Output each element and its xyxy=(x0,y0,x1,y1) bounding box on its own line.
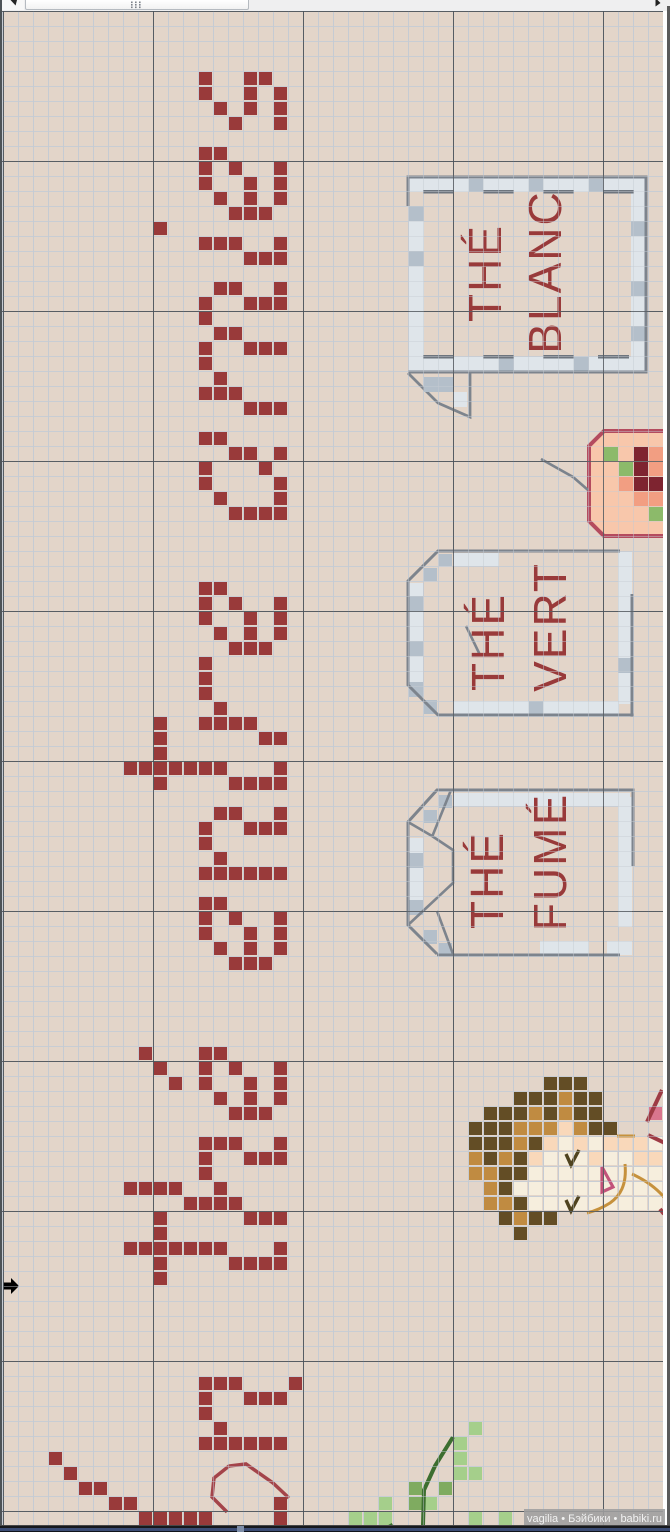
svg-text:FUMÉ: FUMÉ xyxy=(524,793,576,931)
svg-text:THÉ: THÉ xyxy=(461,831,513,929)
svg-text:VERT: VERT xyxy=(524,562,576,692)
svg-text:THÉ: THÉ xyxy=(462,593,514,691)
svg-text:BLANC: BLANC xyxy=(519,190,571,353)
svg-text:THÉ: THÉ xyxy=(459,224,511,322)
